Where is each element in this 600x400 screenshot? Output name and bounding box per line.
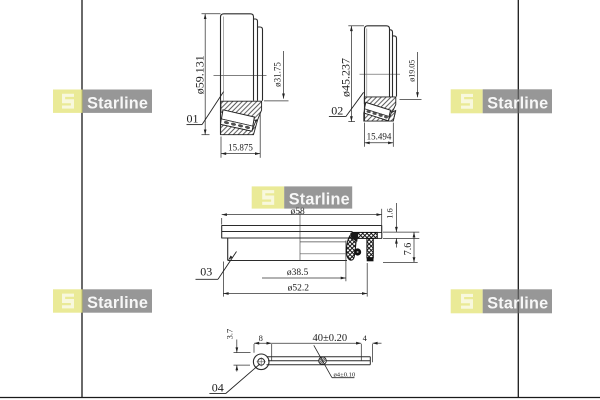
svg-text:03: 03 xyxy=(200,265,212,279)
svg-text:02: 02 xyxy=(331,103,343,117)
svg-text:4: 4 xyxy=(363,333,368,343)
svg-text:Starline: Starline xyxy=(289,191,350,209)
svg-text:ø45.237: ø45.237 xyxy=(338,58,352,97)
svg-text:ø52.2: ø52.2 xyxy=(288,283,310,293)
svg-text:40±0.20: 40±0.20 xyxy=(312,333,347,344)
svg-text:Starline: Starline xyxy=(487,295,548,313)
svg-text:ø38.5: ø38.5 xyxy=(287,268,309,278)
svg-text:01: 01 xyxy=(187,112,199,126)
svg-text:ø4±0.10: ø4±0.10 xyxy=(334,372,356,379)
svg-text:15.494: 15.494 xyxy=(367,132,392,142)
svg-text:04: 04 xyxy=(212,380,224,394)
svg-text:ø59.131: ø59.131 xyxy=(193,55,207,94)
svg-text:Starline: Starline xyxy=(87,294,148,312)
svg-text:7.6: 7.6 xyxy=(403,243,414,256)
svg-text:15.875: 15.875 xyxy=(228,143,253,153)
svg-text:ø31.75: ø31.75 xyxy=(272,62,282,87)
svg-text:1.6: 1.6 xyxy=(385,208,395,219)
svg-text:3.7: 3.7 xyxy=(224,329,234,340)
svg-text:8: 8 xyxy=(259,333,263,343)
svg-text:ø19.05: ø19.05 xyxy=(408,60,417,82)
svg-text:Starline: Starline xyxy=(87,94,148,112)
svg-text:Starline: Starline xyxy=(487,95,548,113)
